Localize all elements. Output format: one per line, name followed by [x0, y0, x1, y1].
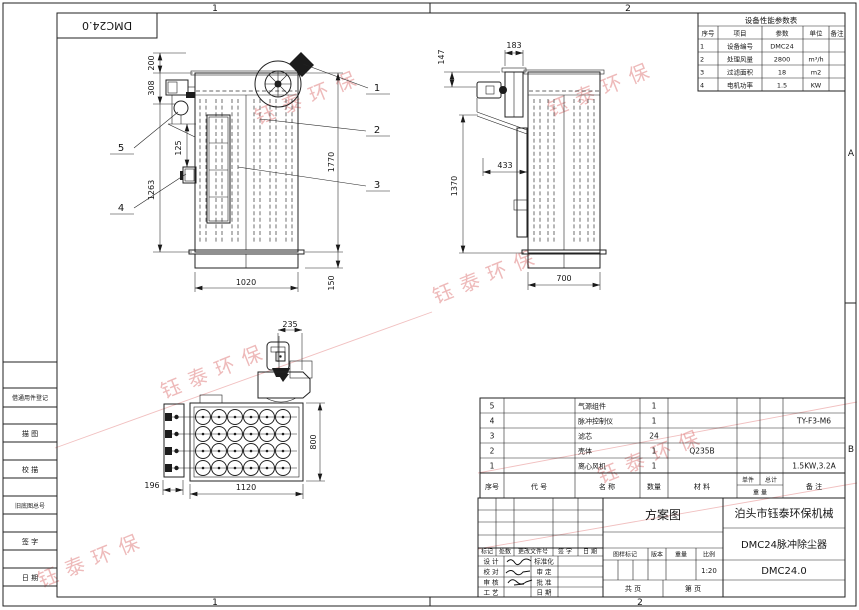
svg-text:过滤面积: 过滤面积: [727, 68, 754, 77]
watermark-text: 钰泰环保: [34, 527, 151, 593]
svg-text:4: 4: [490, 417, 495, 426]
svg-text:1: 1: [700, 43, 704, 51]
parts-row: 3 滤芯 24: [490, 432, 659, 441]
watermark-text: 钰泰环保: [251, 64, 368, 130]
perf-col-item: 项目: [734, 30, 747, 38]
sig-label-design: 设 计: [483, 557, 499, 566]
svg-text:2800: 2800: [774, 56, 791, 64]
svg-text:数量: 数量: [647, 482, 661, 491]
product-name: DMC24脉冲除尘器: [741, 538, 827, 551]
dim-800: 800: [309, 434, 318, 449]
svg-text:材 料: 材 料: [694, 482, 710, 491]
sig-label-date: 日 期: [536, 589, 552, 597]
sig-label-approve: 批 准: [536, 578, 552, 587]
parts-row: 4 脉冲控制仪 1 TY-F3-M6: [490, 417, 832, 426]
parts-header: 序号 代 号 名 称 数量 材 料 单件 总计 重 量 备 注: [485, 476, 822, 497]
stamp-header-weight: 重量: [675, 551, 687, 559]
company-name: 泊头市钰泰环保机械: [735, 506, 834, 520]
cartridge-grid: [170, 410, 297, 476]
doc-type: 方案图: [645, 507, 681, 522]
callout-3: 3: [374, 180, 380, 191]
perf-row: 1 设备编号 DMC24: [700, 42, 794, 51]
sig-label-review2: 审 定: [536, 567, 552, 576]
svg-text:电机功率: 电机功率: [727, 81, 754, 90]
svg-text:1: 1: [490, 462, 495, 471]
svg-text:3: 3: [490, 432, 495, 441]
svg-text:代 号: 代 号: [531, 482, 547, 491]
title-block: 泊头市钰泰环保机械 DMC24脉冲除尘器 DMC24.0 方案图 图样标记 版本…: [478, 498, 845, 597]
dim-150: 150: [327, 275, 336, 290]
svg-text:重 量: 重 量: [753, 489, 767, 497]
zone-right-b: B: [848, 445, 854, 455]
perf-col-no: 序号: [702, 29, 716, 38]
svg-text:1: 1: [652, 402, 657, 411]
stamp-header-mark: 图样标记: [613, 551, 637, 559]
watermark-text: 钰泰环保: [544, 56, 661, 122]
dim-147: 147: [437, 49, 446, 64]
zone-top-2: 2: [625, 4, 631, 14]
svg-text:备 注: 备 注: [806, 482, 822, 491]
zone-right-a: A: [848, 149, 855, 159]
dim-1120: 1120: [236, 483, 256, 492]
inlet-flange: [180, 167, 196, 183]
valve-manifold: [164, 404, 184, 477]
svg-text:脉冲控制仪: 脉冲控制仪: [578, 417, 613, 426]
svg-text:1: 1: [652, 462, 657, 471]
sig-label-standard: 标准化: [534, 557, 554, 566]
pulse-air-assembly: [166, 80, 196, 137]
dim-700: 700: [556, 274, 571, 283]
stamp-header-scale: 比例: [703, 551, 715, 559]
sig-label-audit: 审 核: [483, 578, 499, 587]
dim-125: 125: [174, 140, 183, 155]
svg-text:KW: KW: [811, 82, 822, 90]
callout-5: 5: [118, 143, 124, 154]
svg-text:m2: m2: [811, 69, 821, 77]
svg-text:气源组件: 气源组件: [578, 402, 606, 411]
svg-text:设备编号: 设备编号: [727, 42, 754, 51]
left-registration-strip: 借通用件登记 描 图 校 描 旧底图总号 签 字 日 期: [3, 362, 57, 586]
pages-current: 第 页: [685, 584, 701, 593]
dim-1020: 1020: [236, 278, 256, 287]
rev-header-date: 日 期: [583, 548, 597, 556]
strip-label-old-no: 旧底图总号: [15, 502, 45, 510]
dim-196: 196: [144, 481, 159, 490]
sig-label-process: 工 艺: [483, 589, 499, 597]
drawing-number: DMC24.0: [761, 566, 807, 577]
svg-text:滤芯: 滤芯: [578, 432, 592, 441]
dim-183: 183: [506, 41, 521, 50]
perf-col-value: 参数: [776, 29, 790, 38]
drawing-sheet: 钰泰环保 钰泰环保 钰泰环保 钰泰环保 钰泰环保 钰泰环保 1 2 1 2 A …: [0, 0, 859, 610]
svg-text:5: 5: [490, 402, 495, 411]
strip-label-check-trace: 校 描: [22, 465, 38, 474]
sheet-frame: 1 2 1 2 A B: [3, 3, 856, 608]
sig-label-proof: 校 对: [483, 567, 499, 576]
svg-text:1.5: 1.5: [777, 82, 787, 90]
performance-table: 设备性能参数表 序号 项目 参数 单位 备注 1 设备编号 DMC24 2 处理…: [698, 13, 845, 91]
svg-text:单件: 单件: [742, 476, 754, 484]
handwritten-signatures: [506, 559, 532, 585]
watermark-text: 钰泰环保: [157, 338, 274, 404]
svg-text:1: 1: [652, 417, 657, 426]
perf-table-title: 设备性能参数表: [745, 15, 798, 25]
callout-4: 4: [118, 203, 124, 214]
svg-text:TY-F3-M6: TY-F3-M6: [796, 417, 831, 426]
svg-text:壳体: 壳体: [578, 447, 592, 456]
front-view: [166, 52, 314, 268]
zone-top-1: 1: [212, 4, 218, 14]
zone-bottom-2: 2: [637, 598, 643, 608]
dim-1370: 1370: [450, 176, 459, 196]
svg-text:18: 18: [778, 69, 786, 77]
svg-text:Q235B: Q235B: [689, 447, 714, 456]
dim-235: 235: [282, 320, 297, 329]
svg-text:4: 4: [700, 82, 704, 90]
svg-text:离心风机: 离心风机: [578, 462, 606, 471]
drawing-canvas: 钰泰环保 钰泰环保 钰泰环保 钰泰环保 钰泰环保 钰泰环保 1 2 1 2 A …: [0, 0, 859, 610]
callout-2: 2: [374, 125, 380, 136]
stamp-header-version: 版本: [651, 551, 663, 559]
callout-1: 1: [374, 83, 380, 94]
pages-total: 共 页: [625, 584, 641, 593]
rev-header-count: 处数: [499, 548, 511, 556]
rev-header-sign: 签 字: [558, 548, 572, 556]
dim-1770: 1770: [327, 152, 336, 172]
svg-text:2: 2: [700, 56, 704, 64]
rev-header-mark: 标记: [481, 548, 493, 556]
svg-text:2: 2: [490, 447, 495, 456]
parts-row: 5 气源组件 1: [490, 402, 657, 411]
svg-text:3: 3: [700, 69, 704, 77]
corner-drawing-number: DMC24.0: [82, 19, 132, 32]
dim-308: 308: [147, 80, 156, 95]
svg-text:处理风量: 处理风量: [727, 55, 754, 64]
svg-text:名 称: 名 称: [599, 482, 615, 491]
strip-label-date: 日 期: [22, 574, 38, 582]
svg-text:m³/h: m³/h: [808, 56, 823, 64]
svg-text:24: 24: [649, 432, 659, 441]
perf-col-note: 备注: [831, 29, 845, 38]
svg-text:1: 1: [652, 447, 657, 456]
zone-bottom-1: 1: [212, 598, 218, 608]
svg-text:总计: 总计: [765, 476, 777, 484]
strip-label-trace: 描 图: [22, 429, 38, 438]
corner-label-box: DMC24.0: [57, 13, 157, 38]
scale-value: 1:20: [701, 567, 717, 575]
dim-433: 433: [497, 161, 512, 170]
svg-text:DMC24: DMC24: [770, 43, 793, 51]
strip-label-sign: 签 字: [22, 537, 38, 546]
perf-col-unit: 单位: [810, 29, 824, 38]
dim-200: 200: [147, 55, 156, 70]
svg-text:序号: 序号: [485, 482, 499, 491]
fan-side: [477, 68, 527, 134]
dim-1263: 1263: [147, 180, 156, 200]
strip-label-borrow: 借通用件登记: [12, 394, 48, 402]
svg-text:1.5KW,3.2A: 1.5KW,3.2A: [792, 462, 836, 471]
rev-header-file: 更改文件号: [518, 548, 548, 556]
